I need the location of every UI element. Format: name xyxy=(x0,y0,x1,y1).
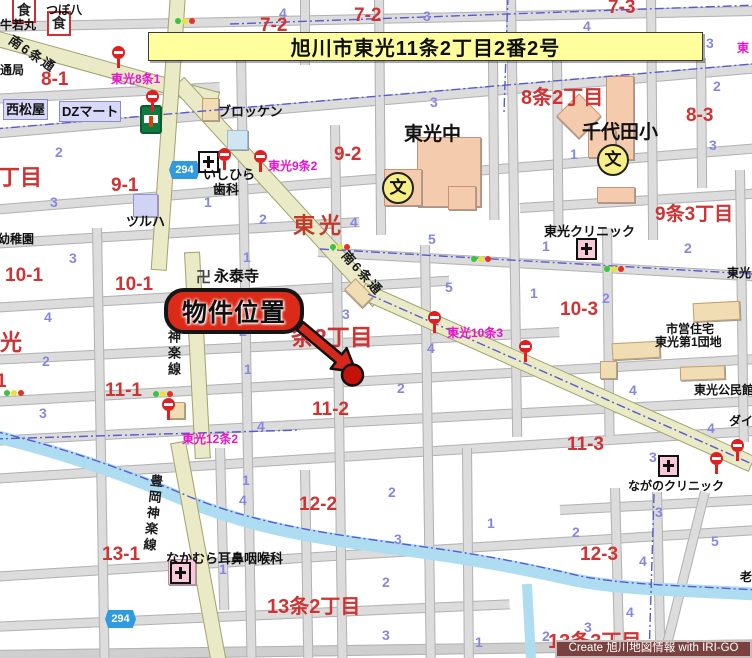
chome-label: 丁目 xyxy=(0,160,42,192)
place-toko-right-partial: 東光 xyxy=(727,264,751,281)
lot-number: 4 xyxy=(239,492,247,508)
lot-number: 2 xyxy=(382,574,390,590)
building-city-housing xyxy=(600,361,617,379)
lot-number: 3 xyxy=(394,531,402,547)
school-icon: 文 xyxy=(382,172,414,204)
lot-number: 3 xyxy=(382,627,390,643)
lot-number: 3 xyxy=(39,405,47,421)
place-tsukyoku-partial: 通局 xyxy=(0,61,24,78)
block-number: 8-3 xyxy=(686,105,713,127)
lot-number: 2 xyxy=(42,353,50,369)
lot-number: 3 xyxy=(649,449,657,465)
lot-number: 1 xyxy=(242,472,250,488)
chome-label: 13条2丁目 xyxy=(267,590,360,619)
bus-stop-icon xyxy=(710,452,723,474)
lot-number: 5 xyxy=(428,231,436,247)
map-credit: Create 旭川地図情報 with IRI-GO xyxy=(555,640,752,658)
lot-number: 2 xyxy=(684,240,692,256)
road-name-kagura-line: 神楽線 xyxy=(164,330,183,378)
place-nagano-clinic: ながのクリニック xyxy=(628,477,724,494)
place-ushiwakamaru: 牛若丸 xyxy=(0,16,36,33)
block-label-one-partial: 1 xyxy=(0,371,7,393)
bus-stop-label: 東光9条2 xyxy=(268,157,317,174)
traffic-signal-icon xyxy=(4,390,24,396)
bus-stop-icon xyxy=(731,439,744,461)
place-nakamura-ent: なかむら耳鼻咽喉科 xyxy=(166,548,283,567)
road xyxy=(658,491,710,658)
hospital-icon xyxy=(658,455,679,477)
traffic-signal-icon xyxy=(175,18,195,24)
temple-icon: 卍 xyxy=(196,266,211,287)
bus-stop-icon xyxy=(146,90,159,112)
road xyxy=(92,228,110,658)
property-location-callout: 物件位置 xyxy=(164,288,304,334)
lot-number: 2 xyxy=(572,524,580,540)
place-dai-partial: ダイ xyxy=(729,412,752,429)
place-rou-partial: 老 xyxy=(740,568,752,585)
block-number: 11-3 xyxy=(567,434,604,456)
block-number: 11-1 xyxy=(105,380,142,402)
block-label-hikari-partial: 光 xyxy=(0,325,22,357)
lot-number: 1 xyxy=(487,515,495,531)
hospital-icon xyxy=(576,238,597,260)
lot-number: 4 xyxy=(629,382,637,398)
lot-number: 4 xyxy=(626,604,634,620)
block-number: 11-2 xyxy=(312,399,349,421)
building-city-housing xyxy=(693,301,741,322)
bus-stop-label: 東光8条1 xyxy=(111,70,160,87)
lot-number: 2 xyxy=(388,484,396,500)
lot-number: 2 xyxy=(397,380,405,396)
road xyxy=(215,448,229,610)
building-city-housing xyxy=(680,365,725,381)
block-number: 10-3 xyxy=(560,299,598,321)
lot-number: 2 xyxy=(602,290,610,306)
road xyxy=(488,60,499,220)
block-number: 7-3 xyxy=(608,0,635,19)
lot-number: 1 xyxy=(243,249,251,265)
lot-number: 3 xyxy=(50,194,58,210)
bus-stop-icon xyxy=(519,340,532,362)
lot-number: 1 xyxy=(542,238,550,254)
bus-stop-label: 東光10条3 xyxy=(447,324,503,341)
place-ishihira-dental: 歯科 xyxy=(213,179,239,198)
lot-number: 2 xyxy=(259,211,267,227)
block-number: 10-1 xyxy=(115,274,153,296)
place-dz-mart: DZマート xyxy=(59,101,121,122)
place-toko-junior-high: 東光中 xyxy=(404,119,461,146)
chome-label: 条2丁目 xyxy=(291,318,373,352)
map-canvas: 食 食 294 294 文 文 卍 南6条通 南6条通 神楽線 豊岡神楽線 東光… xyxy=(0,0,752,658)
place-brocken: ブロッケン xyxy=(218,101,283,120)
place-eitaiji-temple: 永泰寺 xyxy=(214,265,259,286)
lot-number: 4 xyxy=(257,418,265,434)
bus-stop-icon xyxy=(112,46,125,68)
lot-number: 4 xyxy=(427,340,435,356)
road-label-toko: 東光 xyxy=(293,208,345,240)
bus-stop-label: 東 xyxy=(737,39,749,56)
place-toko-danchi: 東光第1団地 xyxy=(655,333,722,350)
lot-number: 5 xyxy=(711,533,719,549)
traffic-signal-icon xyxy=(604,266,624,272)
building-toko-junior-high xyxy=(448,186,476,210)
chome-label: 9条3丁目 xyxy=(655,199,733,226)
route-294-shield: 294 xyxy=(105,610,136,628)
lot-number: 1 xyxy=(475,634,483,650)
lot-number: 3 xyxy=(706,35,714,51)
place-tsuboya: つぼ八 xyxy=(46,1,82,18)
lot-number: 4 xyxy=(44,309,52,325)
lot-number: 1 xyxy=(530,285,538,301)
block-number: 12-2 xyxy=(299,494,337,516)
place-toko-clinic: 東光クリニック xyxy=(544,221,635,240)
school-icon: 文 xyxy=(597,144,629,176)
block-number: 9-2 xyxy=(334,144,361,166)
lot-number: 3 xyxy=(709,137,717,153)
route-294-shield: 294 xyxy=(169,161,200,179)
place-tsuruha: ツルハ xyxy=(126,211,165,230)
bus-stop-label: 東光12条2 xyxy=(182,430,238,447)
block-number: 13-1 xyxy=(102,544,140,566)
lot-number: 3 xyxy=(655,504,663,520)
traffic-signal-icon xyxy=(471,256,491,262)
traffic-signal-icon xyxy=(153,391,173,397)
block-number: 12-3 xyxy=(580,544,618,566)
place-kominkan-partial: 東光公民館 xyxy=(694,381,752,398)
building-toko-clinic xyxy=(597,187,635,203)
building xyxy=(227,130,248,150)
lot-number: 1 xyxy=(244,361,252,377)
address-banner: 旭川市東光11条2丁目2番2号 xyxy=(148,32,703,61)
place-nishimatsuya: 西松屋 xyxy=(3,99,48,120)
bus-stop-icon xyxy=(162,398,175,420)
building xyxy=(202,98,219,121)
lot-number: 2 xyxy=(713,78,721,94)
lot-number: 4 xyxy=(350,214,358,230)
lot-number: 4 xyxy=(639,553,647,569)
block-number: 9-1 xyxy=(111,175,138,197)
block-number: 7-2 xyxy=(354,5,381,27)
place-chiyoda-elementary: 千代田小 xyxy=(582,117,658,144)
road-name-toyooka-kagura-line: 豊岡神楽線 xyxy=(139,473,166,555)
lot-number: 5 xyxy=(445,279,453,295)
lot-number: 4 xyxy=(707,420,715,436)
lot-number: 3 xyxy=(430,94,438,110)
road xyxy=(330,125,347,658)
bus-stop-icon xyxy=(254,150,267,172)
lot-number: 1 xyxy=(204,194,212,210)
road xyxy=(462,448,474,658)
lot-number: 3 xyxy=(423,8,431,24)
lot-number: 1 xyxy=(570,146,578,162)
lot-number: 3 xyxy=(69,250,77,266)
bus-stop-icon xyxy=(428,311,441,333)
place-yochien-partial: 幼稚園 xyxy=(0,230,34,247)
chome-label: 8条2丁目 xyxy=(521,81,603,110)
block-number: 10-1 xyxy=(5,265,43,287)
building-city-housing xyxy=(612,341,661,360)
lot-number: 2 xyxy=(55,144,63,160)
